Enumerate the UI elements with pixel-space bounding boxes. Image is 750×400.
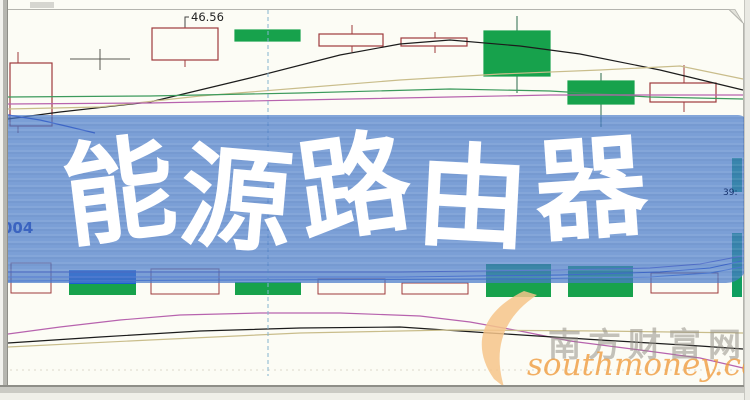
banner-char: 能 <box>55 117 183 270</box>
banner-char: 由 <box>413 126 532 272</box>
banner-title: 能源路由器 <box>60 121 650 261</box>
window-border-right <box>744 0 750 400</box>
banner-overlay: 能源路由器 <box>2 115 748 283</box>
banner-char: 路 <box>289 111 419 265</box>
window-border-bottom <box>0 385 750 400</box>
screenshot-root: 46.56 南方财富网 southmoney.com 能源路由器 004 39: <box>0 0 750 400</box>
watermark-site-url: southmoney.com <box>527 347 750 383</box>
window-border-left <box>0 0 8 400</box>
banner-char: 器 <box>530 116 651 263</box>
banner-char: 源 <box>174 126 298 275</box>
price-mini-label: 39: <box>723 188 737 198</box>
